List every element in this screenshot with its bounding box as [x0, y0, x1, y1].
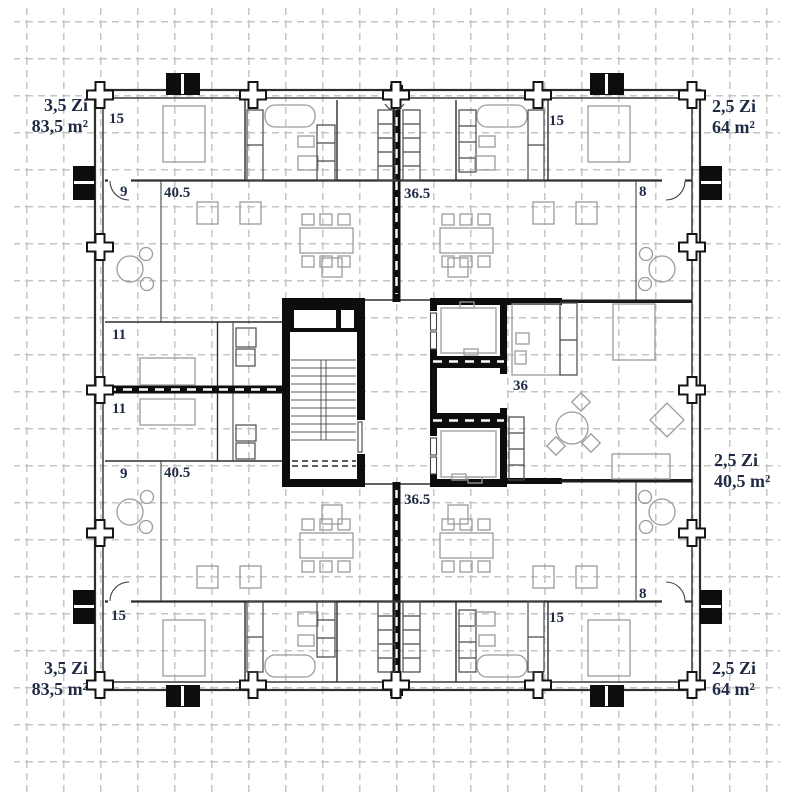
dim-top-left-40-5: 40.5	[164, 185, 190, 201]
dim-elevator-36: 36	[513, 378, 529, 394]
unit-label-top-left-area: 83,5 m²	[32, 116, 88, 136]
dim-top-36-5: 36.5	[404, 186, 430, 202]
dim-top-left-9: 9	[120, 184, 128, 200]
floor-plan-drawing: 3,5 Zi 83,5 m² 2,5 Zi 64 m² 2,5 Zi 40,5 …	[0, 0, 793, 800]
unit-label-top-left-rooms: 3,5 Zi	[44, 95, 88, 115]
dim-bottom-right-15: 15	[549, 610, 564, 626]
dim-bottom-36-5: 36.5	[404, 492, 430, 508]
unit-label-bottom-left-rooms: 3,5 Zi	[44, 658, 88, 678]
dim-bottom-left-9: 9	[120, 466, 128, 482]
dim-room-11-lower: 11	[112, 401, 126, 417]
unit-label-bottom-right-rooms: 2,5 Zi	[712, 658, 756, 678]
dim-bottom-left-40-5: 40.5	[164, 465, 190, 481]
unit-label-middle-right-area: 40,5 m²	[714, 471, 770, 491]
unit-label-middle-right-rooms: 2,5 Zi	[714, 450, 758, 470]
floor-plan-page: 3,5 Zi 83,5 m² 2,5 Zi 64 m² 2,5 Zi 40,5 …	[0, 0, 793, 800]
unit-label-top-right-rooms: 2,5 Zi	[712, 96, 756, 116]
staircase-core	[282, 298, 365, 487]
dim-room-11-upper: 11	[112, 327, 126, 343]
unit-label-bottom-left-area: 83,5 m²	[32, 679, 88, 699]
unit-label-top-right-area: 64 m²	[712, 117, 755, 137]
dim-top-right-15: 15	[549, 113, 564, 129]
dim-top-right-8: 8	[639, 184, 647, 200]
dim-top-left-15: 15	[109, 111, 124, 127]
dim-bottom-left-15: 15	[111, 608, 126, 624]
unit-label-bottom-right-area: 64 m²	[712, 679, 755, 699]
dim-bottom-right-8: 8	[639, 586, 647, 602]
